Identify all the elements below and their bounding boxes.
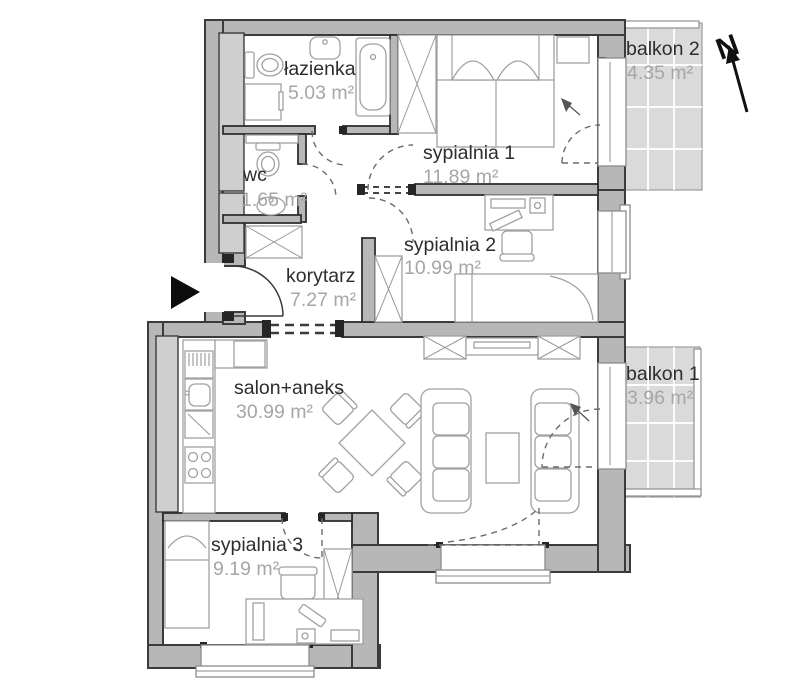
window-sypialnia3 <box>196 645 314 677</box>
label-sypialnia3: sypialnia 3 <box>211 534 303 556</box>
floor-plan: łazienka 5.03 m² wc 1.65 m² sypialnia 1 … <box>0 0 800 690</box>
washing-machine <box>245 84 283 120</box>
stove <box>185 447 213 483</box>
bathroom-toilet <box>245 52 283 78</box>
wc-shelf <box>246 135 298 143</box>
area-sypialnia1: 11.89 m² <box>423 166 499 188</box>
kitchen-cabinet <box>185 411 213 438</box>
kitchen-annex <box>183 340 267 513</box>
desk-sypialnia3 <box>246 599 363 644</box>
balcony2-door-swing <box>561 98 600 163</box>
bathroom-door-swing <box>312 131 346 165</box>
label-balkon2: balkon 2 <box>626 38 700 60</box>
dining-chair <box>389 392 426 429</box>
dining-table <box>339 410 405 476</box>
shaft-box-korytarz <box>246 226 302 258</box>
balcony2-railing <box>625 21 699 28</box>
desk-chair-sypialnia3 <box>279 567 317 599</box>
area-korytarz: 7.27 m² <box>290 289 357 311</box>
entrance-arrow-icon <box>171 276 200 309</box>
area-lazienka: 5.03 m² <box>288 82 355 104</box>
dining-set <box>318 389 426 497</box>
floor-plan-canvas: łazienka 5.03 m² wc 1.65 m² sypialnia 1 … <box>0 0 800 690</box>
label-sypialnia1: sypialnia 1 <box>423 142 515 164</box>
single-bed-sypialnia2 <box>455 274 598 322</box>
label-sypialnia2: sypialnia 2 <box>404 234 496 256</box>
coffee-table <box>486 433 519 483</box>
sofa-left <box>421 389 471 513</box>
sypialnia1-door-swing <box>368 145 413 190</box>
window-salon <box>436 545 550 583</box>
area-balkon1: 3.96 m² <box>627 387 694 409</box>
kitchen-sink <box>185 379 213 410</box>
wardrobe-sypialnia1 <box>398 35 436 133</box>
desk-sypialnia2 <box>485 195 553 231</box>
dining-chair <box>386 460 423 497</box>
dining-chair <box>318 457 355 494</box>
balcony-door-sypialnia1 <box>598 58 626 166</box>
single-bed-sypialnia3 <box>165 521 209 628</box>
entrance-door <box>204 263 283 316</box>
north-arrow-icon: N <box>712 28 747 112</box>
label-balkon1: balkon 1 <box>626 363 700 385</box>
tv-cabinet-right <box>538 336 580 359</box>
label-salon: salon+aneks <box>234 377 344 399</box>
sypialnia1-furniture <box>437 35 589 147</box>
label-wc: wc <box>242 164 267 186</box>
area-sypialnia2: 10.99 m² <box>404 257 481 279</box>
window-sypialnia2 <box>598 205 630 279</box>
bathroom-sink <box>310 37 340 59</box>
fridge <box>234 341 265 367</box>
double-bed <box>437 35 554 147</box>
dish-drainer <box>185 351 213 378</box>
wardrobe-sypialnia2 <box>375 256 402 322</box>
nightstand <box>557 37 589 63</box>
balcony-door-salon <box>598 363 626 469</box>
area-sypialnia3: 9.19 m² <box>213 558 280 580</box>
area-salon: 30.99 m² <box>236 401 313 423</box>
balcony1-railing-bottom <box>623 489 701 496</box>
desk-chair-sypialnia2 <box>500 231 534 261</box>
tv <box>466 338 538 355</box>
area-wc: 1.65 m² <box>241 189 308 211</box>
bathtub <box>356 38 390 116</box>
label-lazienka: łazienka <box>284 58 356 80</box>
area-balkon2: 4.35 m² <box>627 62 694 84</box>
living-room-furniture <box>421 338 579 513</box>
tv-cabinet-left <box>424 336 466 359</box>
label-korytarz: korytarz <box>286 265 355 287</box>
